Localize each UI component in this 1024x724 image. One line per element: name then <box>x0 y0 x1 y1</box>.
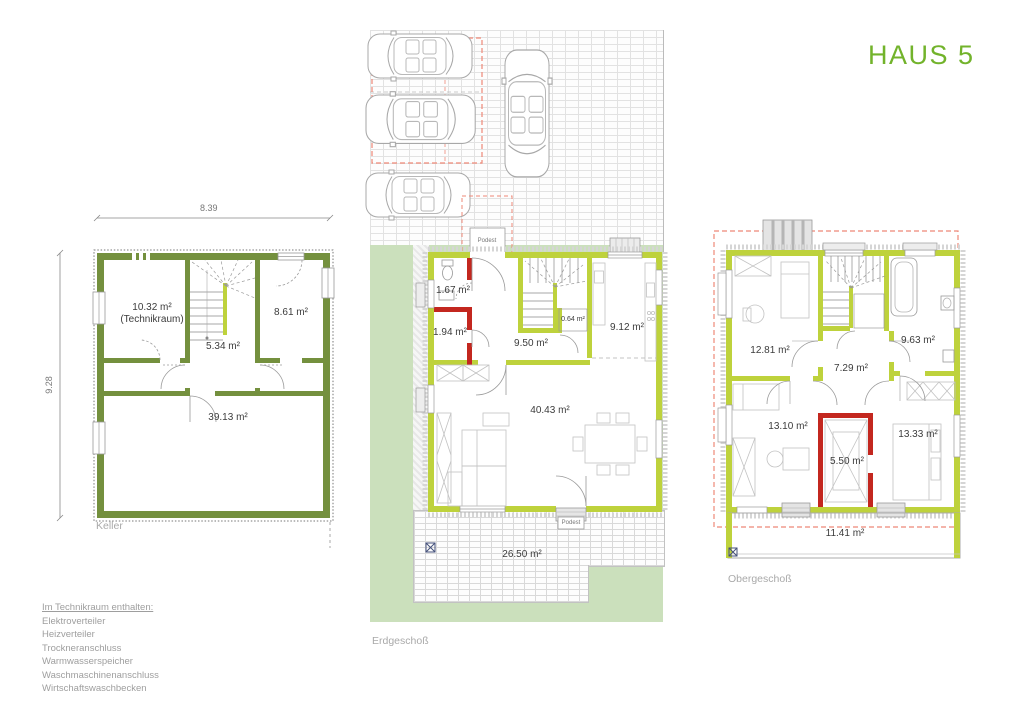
room-label-kitchen: 9.12 m² <box>610 322 644 334</box>
room-label-bedroom1: 12.81 m² <box>750 345 789 357</box>
technikraum-note-item: Waschmaschinenanschluss <box>42 669 159 683</box>
living-furniture <box>437 365 647 506</box>
room-label-terrace: 26.50 m² <box>502 549 541 561</box>
keller-walls <box>97 253 330 518</box>
room-label-534: 5.34 m² <box>206 341 240 353</box>
erdgeschoss-caption: Erdgeschoß <box>372 635 429 647</box>
room-label-closet: 5.50 m² <box>830 456 864 468</box>
room-label-storage: 1.94 m² <box>433 327 467 339</box>
room-label-balcony: 11.41 m² <box>826 528 865 540</box>
room-label-hall-og: 7.29 m² <box>834 363 868 375</box>
podest-bottom-label: Podest <box>562 517 581 529</box>
technikraum-note-item: Warmwasserspeicher <box>42 655 159 669</box>
obergeschoss-caption: Obergeschoß <box>728 573 792 585</box>
technikraum-note: Im Technikraum enthalten: Elektroverteil… <box>42 601 159 696</box>
keller-plan: 10.32 m² (Technikraum) 8.61 m² 5.34 m² 3… <box>40 200 340 550</box>
page-title: HAUS 5 <box>868 40 975 71</box>
kitchen-counters <box>593 263 656 361</box>
obergeschoss-drawing <box>705 210 985 600</box>
obergeschoss-plan: 12.81 m² 9.63 m² 7.29 m² 13.10 m² 5.50 m… <box>705 210 985 600</box>
floorplan-sheet: HAUS 5 <box>0 0 1024 724</box>
keller-caption: Keller <box>96 520 123 532</box>
og-red-wall-gap <box>868 455 873 473</box>
keller-staircase <box>190 260 255 340</box>
technikraum-note-item: Elektroverteiler <box>42 615 159 629</box>
erdgeschoss-plan: Podest 1.67 m² 1.94 m² 9.50 m² 0.64 m² 9… <box>365 25 670 645</box>
podest-top-label: Podest <box>478 235 497 247</box>
parked-cars <box>366 31 552 220</box>
eg-red-walls <box>434 258 472 365</box>
room-label-bedroom3: 13.33 m² <box>898 429 937 441</box>
room-label-861: 8.61 m² <box>274 307 308 319</box>
room-label-technikraum: 10.32 m² (Technikraum) <box>120 302 183 326</box>
keller-insulation-outline <box>94 250 333 521</box>
technikraum-note-item: Heizverteiler <box>42 628 159 642</box>
room-label-3913: 39.13 m² <box>208 412 247 424</box>
outdoor-tap-icon <box>426 543 435 552</box>
room-label-bedroom2: 13.10 m² <box>768 421 807 433</box>
og-exterior-walls <box>726 250 960 513</box>
keller-plan-drawing <box>40 200 340 550</box>
technikraum-note-item: Trockneranschluss <box>42 642 159 656</box>
keller-stair-spine <box>223 283 227 335</box>
dim-width-keller: 8.39 <box>200 203 218 213</box>
og-insulation <box>723 247 963 516</box>
room-label-wc: 1.67 m² <box>436 285 470 297</box>
dim-height-keller: 9.28 <box>44 376 54 394</box>
technikraum-note-item: Wirtschaftswaschbecken <box>42 682 159 696</box>
technikraum-note-heading: Im Technikraum enthalten: <box>42 601 159 615</box>
room-label-understairs: 0.64 m² <box>561 314 585 326</box>
room-label-hall-eg: 9.50 m² <box>514 338 548 350</box>
room-label-bath: 9.63 m² <box>901 335 935 347</box>
room-label-living: 40.43 m² <box>530 405 569 417</box>
og-staircase <box>823 256 885 349</box>
